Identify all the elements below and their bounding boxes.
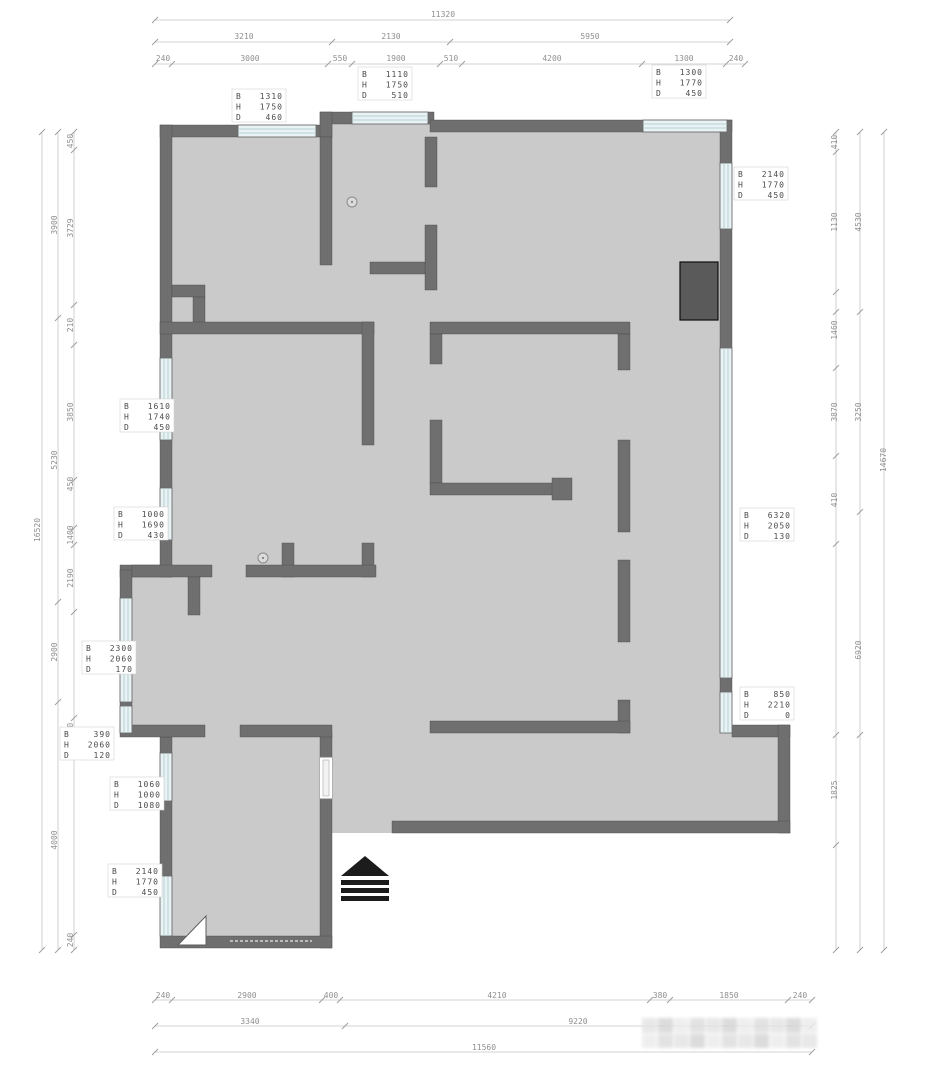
svg-text:430: 430 bbox=[148, 531, 165, 540]
dimension-value: 3850 bbox=[66, 402, 75, 421]
svg-text:D: D bbox=[362, 91, 367, 100]
window-label: B390H2060D120 bbox=[60, 727, 114, 760]
dimension-value: 240 bbox=[156, 991, 171, 1000]
wall-segment bbox=[320, 112, 332, 137]
svg-text:B: B bbox=[118, 510, 123, 519]
svg-text:450: 450 bbox=[142, 888, 159, 897]
svg-text:1060: 1060 bbox=[138, 780, 161, 789]
dimension-value: 14670 bbox=[879, 448, 888, 472]
wall-segment bbox=[370, 262, 425, 274]
fixture-circle-icon bbox=[347, 197, 357, 207]
wall-segment bbox=[720, 229, 732, 348]
svg-text:1690: 1690 bbox=[142, 521, 165, 530]
svg-text:D: D bbox=[64, 751, 69, 760]
svg-text:H: H bbox=[744, 701, 749, 710]
svg-text:1770: 1770 bbox=[762, 181, 785, 190]
svg-text:2050: 2050 bbox=[768, 522, 791, 531]
svg-text:D: D bbox=[236, 113, 241, 122]
dimension-value: 1460 bbox=[830, 320, 839, 339]
dimension-value: 1300 bbox=[674, 54, 693, 63]
window-label: B2140H1770D450 bbox=[734, 167, 788, 200]
wall-segment bbox=[120, 725, 205, 737]
dimension-value: 3250 bbox=[854, 402, 863, 421]
dimension-value: 1850 bbox=[719, 991, 738, 1000]
window-label: B850H2210D0 bbox=[740, 687, 794, 720]
svg-text:450: 450 bbox=[768, 191, 785, 200]
dimension-value: 1130 bbox=[830, 212, 839, 231]
wall-segment bbox=[618, 334, 630, 370]
dimension-value: 3729 bbox=[66, 218, 75, 237]
dimension-value: 3870 bbox=[830, 402, 839, 421]
wall-segment bbox=[552, 478, 572, 500]
svg-text:1110: 1110 bbox=[386, 70, 409, 79]
svg-text:D: D bbox=[86, 665, 91, 674]
dimension-value: 2190 bbox=[66, 568, 75, 587]
svg-text:510: 510 bbox=[392, 91, 409, 100]
dimension-value: 410 bbox=[830, 135, 839, 150]
wall-segment bbox=[240, 725, 332, 737]
svg-text:1740: 1740 bbox=[148, 413, 171, 422]
wall-segment bbox=[430, 420, 442, 483]
svg-text:1300: 1300 bbox=[680, 68, 703, 77]
svg-text:H: H bbox=[738, 181, 743, 190]
dimension-value: 450 bbox=[66, 477, 75, 492]
window-label: B1610H1740D450 bbox=[120, 399, 174, 432]
wall-segment bbox=[430, 120, 643, 132]
window bbox=[720, 348, 732, 678]
dimension-value: 1400 bbox=[66, 525, 75, 544]
svg-text:B: B bbox=[656, 68, 661, 77]
svg-text:H: H bbox=[64, 741, 69, 750]
wall-segment bbox=[160, 440, 172, 488]
window bbox=[352, 112, 428, 124]
svg-text:H: H bbox=[236, 103, 241, 112]
svg-text:1610: 1610 bbox=[148, 402, 171, 411]
window bbox=[643, 120, 727, 132]
svg-text:D: D bbox=[656, 89, 661, 98]
dimension-value: 210 bbox=[66, 318, 75, 333]
wall-segment bbox=[392, 821, 790, 833]
window-label: B1310H1750D460 bbox=[232, 89, 286, 122]
dimension-value: 1825 bbox=[830, 780, 839, 799]
wall-segment bbox=[120, 570, 132, 598]
entry-arrow-icon bbox=[341, 856, 389, 901]
svg-text:D: D bbox=[124, 423, 129, 432]
svg-text:B: B bbox=[236, 92, 241, 101]
wall-segment bbox=[430, 322, 630, 334]
dimension-value: 450 bbox=[66, 134, 75, 149]
wall-segment bbox=[362, 322, 374, 445]
dimension-value: 3340 bbox=[240, 1017, 259, 1026]
window bbox=[720, 163, 732, 229]
svg-text:850: 850 bbox=[774, 690, 791, 699]
wall-segment bbox=[120, 702, 132, 706]
svg-text:B: B bbox=[124, 402, 129, 411]
svg-text:B: B bbox=[86, 644, 91, 653]
svg-text:450: 450 bbox=[154, 423, 171, 432]
dimension-value: 4210 bbox=[487, 991, 506, 1000]
wall-segment bbox=[172, 285, 205, 297]
dimension-value: 5230 bbox=[50, 450, 59, 469]
floor-plan-page: 1132032102130595024030005501900510420013… bbox=[0, 0, 936, 1080]
dimension-value: 2900 bbox=[50, 642, 59, 661]
dimension-value: 6920 bbox=[854, 640, 863, 659]
dimension-value: 4530 bbox=[854, 212, 863, 231]
svg-text:D: D bbox=[744, 711, 749, 720]
svg-text:B: B bbox=[744, 511, 749, 520]
svg-text:H: H bbox=[112, 878, 117, 887]
dimension-value: 9220 bbox=[568, 1017, 587, 1026]
dimension-value: 11320 bbox=[431, 10, 455, 19]
svg-text:120: 120 bbox=[94, 751, 111, 760]
wall-segment bbox=[430, 721, 630, 733]
svg-text:B: B bbox=[112, 867, 117, 876]
svg-text:B: B bbox=[64, 730, 69, 739]
dimension-value: 3900 bbox=[50, 215, 59, 234]
svg-text:H: H bbox=[86, 655, 91, 664]
svg-text:H: H bbox=[656, 79, 661, 88]
svg-text:B: B bbox=[744, 690, 749, 699]
wall-segment bbox=[618, 560, 630, 642]
window-label: B1300H1770D450 bbox=[652, 65, 706, 98]
svg-text:1080: 1080 bbox=[138, 801, 161, 810]
window-label: B2140H1770D450 bbox=[108, 864, 162, 897]
dimension-value: 2900 bbox=[237, 991, 256, 1000]
svg-text:1750: 1750 bbox=[386, 81, 409, 90]
wall-segment bbox=[430, 483, 556, 495]
window-label: B1060H1000D1080 bbox=[110, 777, 164, 810]
dimension-value: 5950 bbox=[580, 32, 599, 41]
svg-text:0: 0 bbox=[785, 711, 791, 720]
svg-text:H: H bbox=[362, 81, 367, 90]
dimension-value: 1900 bbox=[386, 54, 405, 63]
svg-text:2140: 2140 bbox=[136, 867, 159, 876]
svg-text:2060: 2060 bbox=[88, 741, 111, 750]
wall-segment bbox=[160, 737, 172, 753]
svg-text:B: B bbox=[362, 70, 367, 79]
svg-text:D: D bbox=[738, 191, 743, 200]
window-label: B6320H2050D130 bbox=[740, 508, 794, 541]
dimension-value: 240 bbox=[793, 991, 808, 1000]
dimension-value: 410 bbox=[830, 493, 839, 508]
svg-text:D: D bbox=[118, 531, 123, 540]
svg-text:460: 460 bbox=[266, 113, 283, 122]
dimension-value: 380 bbox=[653, 991, 668, 1000]
wall-segment bbox=[188, 577, 200, 615]
svg-text:1770: 1770 bbox=[680, 79, 703, 88]
fixture-circle-icon bbox=[258, 553, 268, 563]
dimension-value: 11560 bbox=[472, 1043, 496, 1052]
svg-text:H: H bbox=[118, 521, 123, 530]
door-slot bbox=[320, 757, 332, 799]
dimension-value: 510 bbox=[444, 54, 459, 63]
window bbox=[120, 706, 132, 733]
wall-segment bbox=[618, 440, 630, 532]
svg-text:2210: 2210 bbox=[768, 701, 791, 710]
wall-segment bbox=[132, 565, 212, 577]
dimension-value: 240 bbox=[156, 54, 171, 63]
wall-segment bbox=[425, 137, 437, 187]
dimension-value: 16520 bbox=[33, 518, 42, 542]
svg-text:6320: 6320 bbox=[768, 511, 791, 520]
shaft bbox=[680, 262, 718, 320]
svg-text:2300: 2300 bbox=[110, 644, 133, 653]
svg-text:H: H bbox=[114, 791, 119, 800]
wall-segment bbox=[320, 137, 332, 265]
wall-segment bbox=[430, 334, 442, 364]
wall-segment bbox=[778, 725, 790, 833]
window bbox=[238, 125, 316, 137]
svg-text:2060: 2060 bbox=[110, 655, 133, 664]
wall-segment bbox=[160, 322, 374, 334]
svg-text:D: D bbox=[112, 888, 117, 897]
dimension-value: 4200 bbox=[542, 54, 561, 63]
wall-segment bbox=[425, 225, 437, 290]
dimension-value: 240 bbox=[66, 933, 75, 948]
svg-text:D: D bbox=[744, 532, 749, 541]
svg-text:B: B bbox=[114, 780, 119, 789]
svg-text:D: D bbox=[114, 801, 119, 810]
dimension-value: 240 bbox=[729, 54, 744, 63]
svg-text:1000: 1000 bbox=[138, 791, 161, 800]
window-label: B1110H1750D510 bbox=[358, 67, 412, 100]
svg-text:H: H bbox=[744, 522, 749, 531]
dimension-value: 3210 bbox=[234, 32, 253, 41]
dimension-value: 550 bbox=[333, 54, 348, 63]
wall-segment bbox=[720, 678, 732, 692]
svg-text:1770: 1770 bbox=[136, 878, 159, 887]
dimension-value: 3000 bbox=[240, 54, 259, 63]
svg-text:1310: 1310 bbox=[260, 92, 283, 101]
svg-text:450: 450 bbox=[686, 89, 703, 98]
watermark-mosaic bbox=[642, 1018, 817, 1048]
svg-text:390: 390 bbox=[94, 730, 111, 739]
window-label: B1000H1690D430 bbox=[114, 507, 168, 540]
dimension-value: 2130 bbox=[381, 32, 400, 41]
svg-text:1750: 1750 bbox=[260, 103, 283, 112]
svg-text:B: B bbox=[738, 170, 743, 179]
svg-text:1000: 1000 bbox=[142, 510, 165, 519]
svg-text:H: H bbox=[124, 413, 129, 422]
window bbox=[720, 692, 732, 733]
wall-segment bbox=[246, 565, 376, 577]
svg-text:170: 170 bbox=[116, 665, 133, 674]
floor-plan-svg: 1132032102130595024030005501900510420013… bbox=[0, 0, 936, 1080]
dimension-value: 4000 bbox=[50, 830, 59, 849]
svg-text:2140: 2140 bbox=[762, 170, 785, 179]
svg-text:130: 130 bbox=[774, 532, 791, 541]
window-label: B2300H2060D170 bbox=[82, 641, 136, 674]
dimension-value: 400 bbox=[324, 991, 339, 1000]
